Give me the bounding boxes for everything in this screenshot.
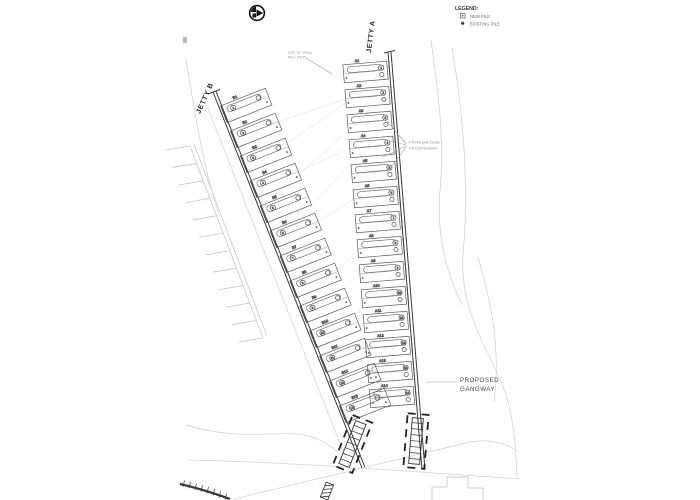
berth-b-item: 13B13 [338, 384, 391, 423]
gangway-jetty-a [403, 413, 428, 469]
proposed-gangway-line2: GANGWAY [460, 386, 495, 393]
berth-a-item: 8A8 [357, 231, 405, 257]
berth-tiny-label: A4 [361, 134, 366, 138]
berth-tiny-label: A8 [369, 234, 374, 238]
berth-tiny-label: A6 [365, 184, 370, 188]
proposed-gangway-line1: PROPOSED [460, 377, 499, 384]
square-dot-icon-center [462, 15, 464, 17]
berth-a-item: 1A1 [343, 56, 391, 82]
north-arrow-icon [249, 5, 265, 21]
jetty-b-label: JETTY B [195, 82, 215, 115]
berth-b-item: 1B1 [219, 84, 272, 123]
berth-tiny-label: B10 [321, 319, 329, 325]
pull-annotation: 4 Point pull Circle / 4 ft Connections [409, 140, 443, 151]
berth-a-item: 12A12 [365, 331, 413, 357]
berth-b-item: 9B9 [298, 284, 351, 323]
berth-b-item: 5B5 [259, 184, 312, 223]
berth-a-item: 5A5 [351, 156, 399, 182]
legend-title: LEGEND: [455, 6, 479, 12]
legend-item-label: EXISTING PILE [470, 22, 500, 27]
legend-item-new-pile: NEW PILE [461, 14, 491, 20]
berth-tiny-label: A10 [373, 284, 380, 289]
berth-b-item: 7B7 [278, 234, 331, 273]
berth-a-item: 2A2 [345, 81, 393, 107]
berth-b-item: 10B10 [308, 309, 361, 348]
berth-a-item: 11A11 [363, 306, 411, 332]
berth-a-item: 10A10 [361, 281, 409, 307]
revetment-hatch [180, 480, 230, 500]
berth-tiny-label: A9 [371, 259, 376, 263]
proposed-gangway-label: PROPOSED GANGWAY [460, 377, 499, 393]
site-plan-drawing: 1B12B23B34B45B56B67B78B89B910B1011B1112B… [0, 0, 700, 500]
jetty-b-endcap [320, 482, 333, 500]
filled-dot-icon [461, 22, 464, 25]
berth-tiny-label: A1 [354, 59, 359, 63]
berth-b-item: 2B2 [229, 109, 282, 148]
berth-a-item: 13A13 [367, 356, 415, 382]
berth-a-item: 7A7 [355, 206, 403, 232]
pull-annotation-line2: 4 ft Connections [409, 146, 438, 151]
berth-tiny-label: B12 [341, 369, 349, 375]
legend-item-existing-pile: EXISTING PILE [461, 22, 500, 27]
berth-tiny-label: B11 [331, 344, 339, 350]
berth-tiny-label: A5 [363, 159, 368, 163]
legend: LEGEND: NEW PILE EXISTING PILE [455, 6, 500, 27]
berth-tiny-label: A11 [375, 309, 382, 314]
berth-a-item: 9A9 [359, 256, 407, 282]
jetty-a-line [384, 51, 425, 471]
berth-tiny-label: A13 [379, 359, 386, 364]
top-note-line1: LOC OF TRIAL [288, 51, 313, 55]
jetty-a-label: JETTY A [366, 20, 377, 53]
berth-tiny-label: A12 [377, 334, 384, 339]
berth-tiny-label: A7 [367, 209, 372, 213]
top-note: LOC OF TRIAL PILE (TYP) [288, 51, 313, 60]
legend-item-label: NEW PILE [470, 14, 490, 19]
berth-b-item: 3B3 [239, 134, 292, 173]
top-note-line2: PILE (TYP) [288, 56, 306, 60]
berth-tiny-label: A2 [357, 84, 362, 88]
berth-b-item: 12B12 [328, 359, 381, 398]
berth-a-item: 6A6 [353, 181, 401, 207]
berth-tiny-label: A3 [359, 109, 364, 113]
berth-b-item: 6B6 [269, 209, 322, 248]
pull-annotation-line1: 4 Point pull Circle / [409, 140, 443, 145]
berth-tiny-label: B13 [351, 394, 359, 400]
gangway-jetty-b [333, 415, 372, 473]
berth-b-item: 11B11 [318, 334, 371, 373]
berth-b-item: 8B8 [288, 259, 341, 298]
berth-tiny-label: A14 [381, 384, 388, 389]
survey-mark [183, 37, 187, 43]
